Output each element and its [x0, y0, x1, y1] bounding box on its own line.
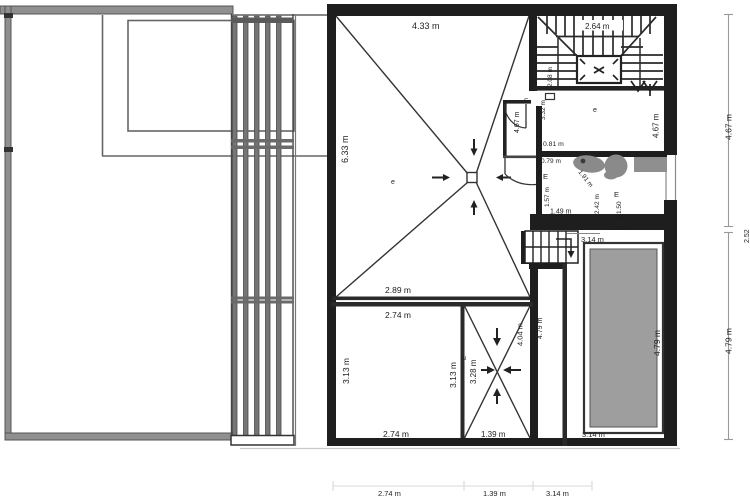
svg-text:4.67 m: 4.67 m — [514, 111, 521, 133]
svg-text:e: e — [391, 179, 395, 186]
svg-text:6.33 m: 6.33 m — [340, 135, 350, 163]
svg-text:2.74 m: 2.74 m — [383, 429, 409, 439]
svg-text:E: E — [614, 190, 619, 199]
svg-text:3.13 m: 3.13 m — [448, 362, 458, 388]
svg-text:0.79 m: 0.79 m — [541, 158, 561, 165]
svg-text:E: E — [543, 172, 548, 181]
svg-text:4.67 m: 4.67 m — [652, 113, 661, 138]
svg-text:4.67 m: 4.67 m — [724, 114, 734, 140]
svg-text:1.50: 1.50 — [616, 201, 623, 214]
svg-text:2.42 m: 2.42 m — [594, 194, 601, 214]
svg-text:1.39 m: 1.39 m — [481, 430, 506, 439]
svg-text:1.57 m: 1.57 m — [544, 187, 551, 207]
svg-text:2.69 m: 2.69 m — [610, 221, 632, 228]
svg-text:1.39 m: 1.39 m — [483, 489, 506, 498]
svg-text:E: E — [524, 98, 529, 105]
svg-text:3.14 m: 3.14 m — [546, 489, 569, 498]
svg-text:2.74 m: 2.74 m — [385, 310, 411, 320]
svg-text:4.33 m: 4.33 m — [412, 21, 440, 31]
svg-text:1.49 m: 1.49 m — [550, 209, 572, 216]
svg-text:e: e — [593, 107, 597, 114]
svg-text:2.74 m: 2.74 m — [378, 489, 401, 498]
svg-text:2.89 m: 2.89 m — [385, 285, 411, 295]
svg-text:2.08 m: 2.08 m — [547, 67, 554, 87]
svg-text:2.52: 2.52 — [744, 229, 750, 243]
svg-text:3.32 m: 3.32 m — [540, 100, 547, 120]
svg-text:3.14 m: 3.14 m — [582, 430, 605, 439]
svg-text:4.04 m: 4.04 m — [516, 323, 525, 346]
svg-text:4.79 m: 4.79 m — [724, 328, 734, 354]
svg-text:2.64 m: 2.64 m — [585, 22, 610, 31]
svg-text:3.13 m: 3.13 m — [341, 358, 351, 384]
svg-text:0.81 m: 0.81 m — [543, 141, 564, 148]
svg-text:E: E — [461, 355, 468, 360]
svg-text:4.79 m: 4.79 m — [537, 317, 544, 339]
svg-text:4.79 m: 4.79 m — [652, 330, 662, 356]
svg-text:3.28 m: 3.28 m — [469, 359, 478, 384]
